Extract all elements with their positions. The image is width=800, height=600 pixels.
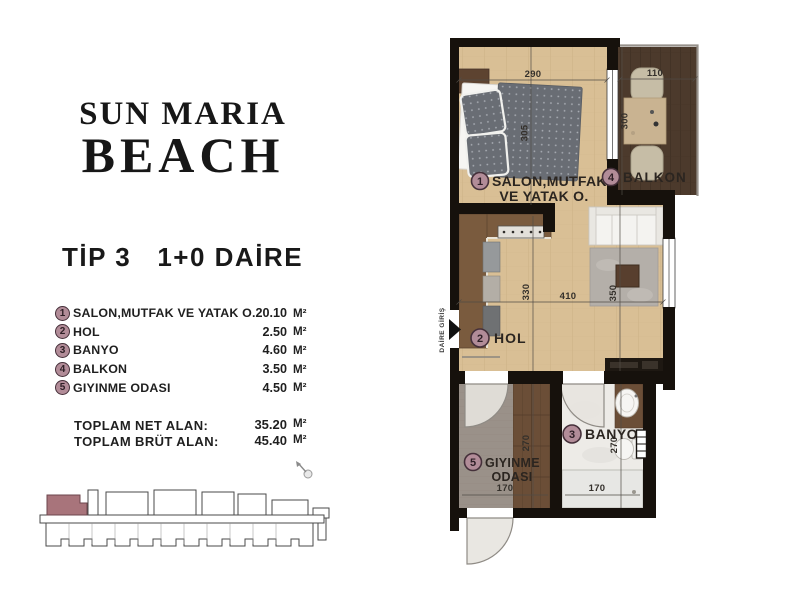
giyinme-label-line1: GIYINME [485,456,540,470]
floor-plan: 290 110 300 305 330 410 350 270 270 170 … [435,25,707,570]
room-legend: 1 SALON,MUTFAK VE YATAK O. 20.10 M² 2 HO… [55,304,323,397]
legend-number-badge: 1 [55,306,70,321]
dim-salon-depth: 330 [521,284,532,301]
total-label: TOPLAM NET ALAN: [74,418,208,433]
legend-area-unit: M² [293,307,307,320]
key-plan-corridor [40,515,324,523]
dim-bathroom-width: 170 [589,483,606,494]
total-unit: M² [293,417,307,430]
table-decor [650,110,654,114]
highlighted-unit [47,495,87,515]
total-label: TOPLAM BRÜT ALAN: [74,434,219,449]
legend-row-balkon: 4 BALKON 3.50 M² [55,360,323,379]
banyo-number-badge: 3 [569,429,575,441]
dim-living-depth: 350 [608,285,619,302]
pillow [465,132,509,177]
dim-dressing-width: 170 [497,483,514,494]
dim-hol-width: 410 [560,291,577,302]
legend-number-badge: 5 [55,380,70,395]
dim-balcony-depth: 300 [620,113,631,130]
coffee-table [616,265,639,287]
salon-number-badge: 1 [477,176,483,188]
table-decor [631,131,635,135]
legend-area-value: 4.60 [262,343,287,357]
giyinme-label-line2: ODASI [491,470,532,484]
dim-salon-width: 290 [525,69,542,80]
balkon-label: 4 BALKON [603,169,687,186]
legend-row-giyinme: 5 GIYINME ODASI 4.50 M² [55,378,323,397]
brand-title: SUN MARIA BEACH [57,96,309,178]
giyinme-number-badge: 5 [470,457,476,469]
legend-area-unit: M² [293,363,307,376]
key-plan-block [106,492,148,516]
unit-type-label: TİP 3 1+0 DAİRE [62,242,303,273]
total-unit: M² [293,433,307,446]
legend-number-badge: 3 [55,343,70,358]
balkon-label-text: BALKON [623,170,687,185]
total-net-row: TOPLAM NET ALAN: 35.20 M² [55,417,323,433]
legend-row-banyo: 3 BANYO 4.60 M² [55,341,323,360]
page: { "brand": { "line1": "SUN MARIA", "line… [0,0,800,600]
exterior-door [467,518,513,564]
legend-row-hol: 2 HOL 2.50 M² [55,323,323,342]
compass-icon [296,461,312,478]
total-brut-row: TOPLAM BRÜT ALAN: 45.40 M² [55,433,323,449]
key-plan-block [154,490,196,516]
kitchen-sink [483,276,500,302]
building-key-plan [32,460,332,570]
legend-area-value: 4.50 [262,381,287,395]
key-plan-block [202,492,234,516]
legend-area-unit: M² [293,344,307,357]
sink [616,389,639,417]
salon-label-line1: SALON,MUTFAK [492,173,607,189]
legend-area-value: 2.50 [262,325,287,339]
legend-row-salon: 1 SALON,MUTFAK VE YATAK O. 20.10 M² [55,304,323,323]
tv-unit [605,358,663,372]
legend-area-unit: M² [293,381,307,394]
banyo-label: 3 BANYO [563,425,638,443]
table-decor [654,122,659,127]
banyo-label-text: BANYO [585,426,638,442]
hol-label-text: HOL [494,330,527,346]
key-plan-block [238,494,266,516]
salon-label-line2: VE YATAK O. [499,188,588,204]
shower-drain [632,490,636,494]
faucet [635,395,638,398]
kitchen-appliance [483,242,500,272]
key-plan-block [272,500,308,516]
legend-number-badge: 4 [55,362,70,377]
legend-room-name: SALON,MUTFAK VE YATAK O. [73,306,256,320]
balkon-number-badge: 4 [608,172,615,184]
legend-number-badge: 2 [55,324,70,339]
legend-area-unit: M² [293,325,307,338]
legend-room-name: BANYO [73,343,119,357]
dim-dressing-depth: 270 [521,435,532,452]
key-plan-block [88,490,98,516]
total-value: 45.40 [254,433,287,448]
legend-room-name: GIYINME ODASI [73,381,171,395]
rug-texture [627,288,653,302]
entrance-label: DAİRE GİRİŞ [438,307,446,352]
hol-label: 2 HOL [471,329,527,347]
key-plan-lower-units [46,523,313,546]
legend-room-name: HOL [73,325,100,339]
sofa [589,207,663,245]
brand-line2: BEACH [57,132,309,178]
legend-room-name: BALKON [73,362,127,376]
area-totals: TOPLAM NET ALAN: 35.20 M² TOPLAM BRÜT AL… [55,417,323,448]
hol-number-badge: 2 [477,333,483,345]
dim-bed-length: 305 [520,124,531,141]
legend-area-value: 20.10 [255,306,287,320]
total-value: 35.20 [254,417,287,432]
dim-balcony-width: 110 [647,68,663,79]
legend-area-value: 3.50 [262,362,287,376]
pillow [460,89,506,137]
